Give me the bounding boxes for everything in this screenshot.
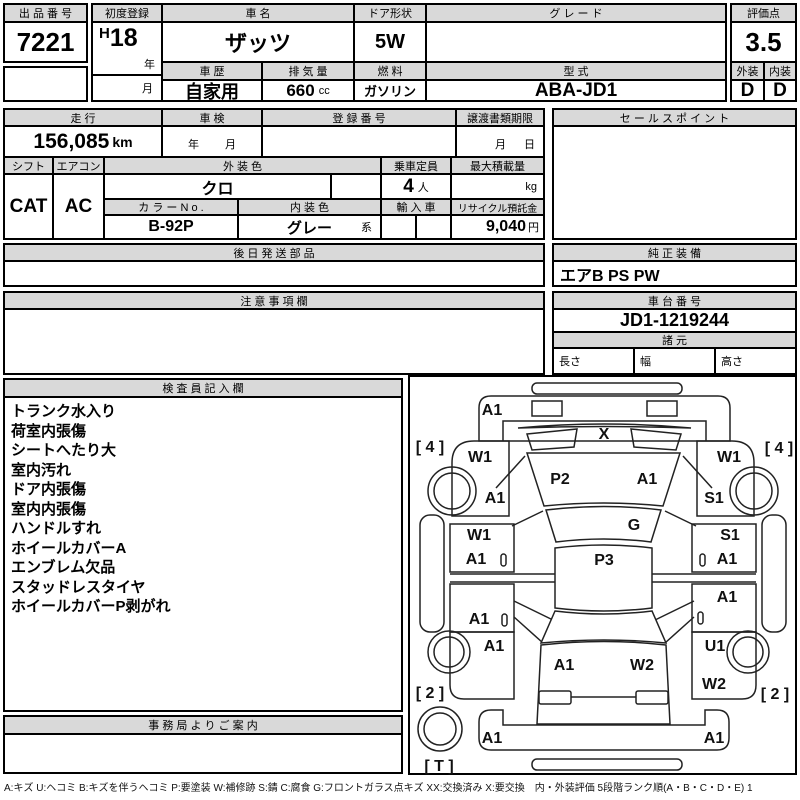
door-value: 5W: [353, 21, 427, 63]
damage-mark: A1: [482, 402, 502, 420]
inspector-label: 検 査 員 記 入 欄: [3, 378, 403, 398]
inspector-item: 室内内張傷: [11, 500, 395, 520]
auction-no-extra-box: [3, 66, 88, 102]
recycle-value: 9,040円: [450, 214, 545, 240]
equipment-value: エアB PS PW: [552, 260, 797, 287]
damage-mark: A1: [637, 471, 657, 489]
first-reg-value: H18 年: [91, 21, 163, 76]
aircon-value: AC: [52, 173, 105, 240]
damage-mark: P3: [594, 552, 614, 570]
color-no-value: B-92P: [103, 214, 239, 240]
first-reg-year: 18: [110, 25, 138, 53]
mileage-number: 156,085: [33, 130, 109, 154]
damage-mark: A1: [554, 657, 574, 675]
chassis-value: JD1-1219244: [552, 308, 797, 333]
model-label: 型 式: [425, 61, 727, 81]
inspector-item: 荷室内張傷: [11, 422, 395, 442]
damage-mark: U1: [705, 638, 725, 656]
sales-point-value: [552, 125, 797, 240]
ext-color-extra-cell: [330, 173, 382, 200]
caution-value: [3, 308, 545, 375]
damage-mark: G: [628, 517, 640, 535]
import-car-cell-2: [415, 214, 452, 240]
displacement-number: 660: [286, 81, 314, 101]
import-car-cell-1: [380, 214, 417, 240]
damage-mark: A1: [482, 730, 502, 748]
displacement-unit: cc: [319, 85, 330, 97]
inspector-item: 室内汚れ: [11, 461, 395, 481]
spec-height-label: 高さ: [714, 347, 797, 375]
max-load-value: kg: [450, 173, 545, 200]
int-color-name: グレー: [287, 217, 332, 238]
history-value: 自家用: [161, 79, 263, 102]
damage-mark: A1: [484, 638, 504, 656]
inspector-notes: トランク水入り荷室内張傷シートへたり大室内汚れドア内張傷室内内張傷ハンドルすれホ…: [3, 396, 403, 712]
inspector-item: スタッドレスタイヤ: [11, 578, 395, 598]
fuel-label: 燃 料: [353, 61, 427, 81]
reg-no-value: [261, 125, 457, 158]
inspection-year-unit: 年: [188, 136, 199, 152]
damage-marks-layer: A1X[ 4 ][ 4 ]W1W1P2A1A1S1GW1S1A1A1P3A1A1…: [410, 377, 795, 773]
shift-value: CAT: [3, 173, 54, 240]
inspection-value: 年月: [161, 125, 263, 158]
recycle-unit: 円: [528, 219, 539, 235]
inspector-item: エンブレム欠品: [11, 558, 395, 578]
damage-mark: S1: [720, 527, 740, 545]
damage-mark: [ 4 ]: [765, 440, 793, 458]
capacity-unit: 人: [418, 179, 429, 195]
office-label: 事 務 局 よ り ご 案 内: [3, 715, 403, 735]
inspector-item: ホイールカバーA: [11, 539, 395, 559]
damage-mark: W2: [702, 676, 726, 694]
exterior-label: 外装: [730, 61, 765, 81]
damage-mark: A1: [485, 490, 505, 508]
first-reg-label: 初度登録: [91, 3, 163, 23]
inspector-item: シートへたり大: [11, 441, 395, 461]
interior-label: 内装: [763, 61, 797, 81]
damage-mark: S1: [704, 490, 724, 508]
score-value: 3.5: [730, 21, 797, 63]
inspector-item: ホイールカバーP剥がれ: [11, 597, 395, 617]
damage-mark: A1: [704, 730, 724, 748]
history-label: 車 歴: [161, 61, 263, 81]
interior-grade: D: [763, 79, 797, 102]
auction-no-label: 出 品 番 号: [3, 3, 88, 23]
int-color-value: グレー 系: [237, 214, 382, 240]
inspector-item: ハンドルすれ: [11, 519, 395, 539]
spec-length-label: 長さ: [552, 347, 635, 375]
damage-mark: [ T ]: [424, 758, 453, 776]
car-name-value: ザッツ: [161, 21, 355, 63]
capacity-value: 4人: [380, 173, 452, 200]
spec-width-label: 幅: [633, 347, 716, 375]
transfer-value: 月日: [455, 125, 545, 158]
ext-color-value: クロ: [103, 173, 332, 200]
car-name-label: 車 名: [161, 3, 355, 23]
first-reg-era: H: [99, 25, 110, 42]
inspector-item: トランク水入り: [11, 402, 395, 422]
mileage-unit: km: [112, 134, 132, 150]
damage-mark: P2: [550, 471, 570, 489]
damage-mark: W1: [468, 449, 492, 467]
mileage-value: 156,085km: [3, 125, 163, 158]
office-value: [3, 733, 403, 774]
damage-mark: [ 2 ]: [761, 686, 789, 704]
displacement-label: 排 気 量: [261, 61, 355, 81]
damage-mark: [ 2 ]: [416, 685, 444, 703]
auction-sheet: 出 品 番 号 7221 初度登録 H18 年 月 車 名 ザッツ 車 歴 自家…: [0, 0, 800, 800]
damage-mark: A1: [717, 551, 737, 569]
damage-code-legend: A:キズ U:ヘコミ B:キズを伴うヘコミ P:要塗装 W:補修跡 S:錆 C:…: [4, 779, 798, 794]
model-value: ABA-JD1: [425, 79, 727, 102]
damage-mark: W1: [467, 527, 491, 545]
exterior-grade: D: [730, 79, 765, 102]
auction-no-value: 7221: [3, 21, 88, 63]
damage-mark: A1: [717, 589, 737, 607]
score-label: 評価点: [730, 3, 797, 23]
damage-mark: A1: [466, 551, 486, 569]
damage-diagram: A1X[ 4 ][ 4 ]W1W1P2A1A1S1GW1S1A1A1P3A1A1…: [408, 375, 797, 775]
capacity-number: 4: [403, 176, 414, 198]
inspection-month-unit: 月: [225, 136, 236, 152]
door-label: ドア形状: [353, 3, 427, 23]
parts-later-value: [3, 260, 545, 287]
damage-mark: [ 4 ]: [416, 439, 444, 457]
damage-mark: W2: [630, 657, 654, 675]
inspector-item: ドア内張傷: [11, 480, 395, 500]
int-color-suffix: 系: [361, 219, 372, 235]
damage-mark: X: [599, 426, 610, 444]
transfer-day-unit: 日: [524, 136, 535, 152]
first-reg-month-unit: 月: [91, 74, 163, 102]
displacement-value: 660cc: [261, 79, 355, 102]
first-reg-year-unit: 年: [144, 56, 155, 72]
grade-label: グ レ ー ド: [425, 3, 727, 23]
grade-value: [425, 21, 727, 63]
damage-mark: A1: [469, 611, 489, 629]
damage-mark: W1: [717, 449, 741, 467]
transfer-month-unit: 月: [495, 136, 506, 152]
recycle-number: 9,040: [486, 218, 526, 236]
fuel-value: ガソリン: [353, 79, 427, 102]
